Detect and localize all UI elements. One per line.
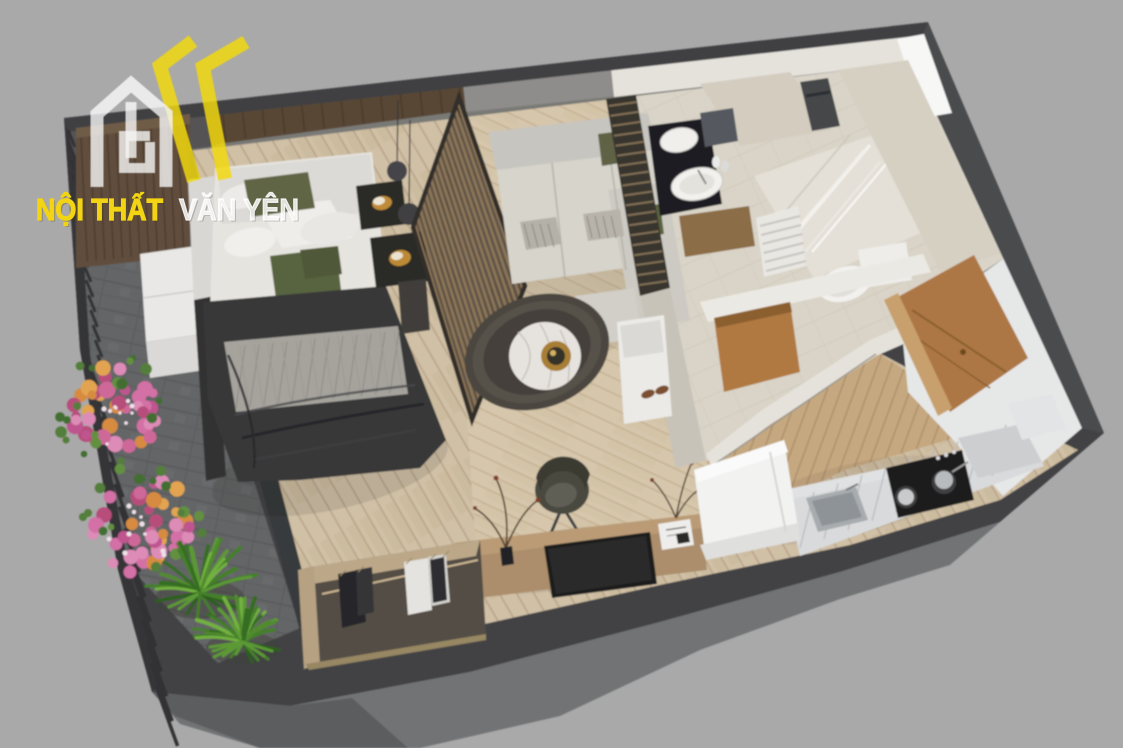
svg-text:VĂN YÊN: VĂN YÊN: [179, 191, 299, 227]
svg-text:NỘI THẤT: NỘI THẤT: [36, 191, 163, 227]
